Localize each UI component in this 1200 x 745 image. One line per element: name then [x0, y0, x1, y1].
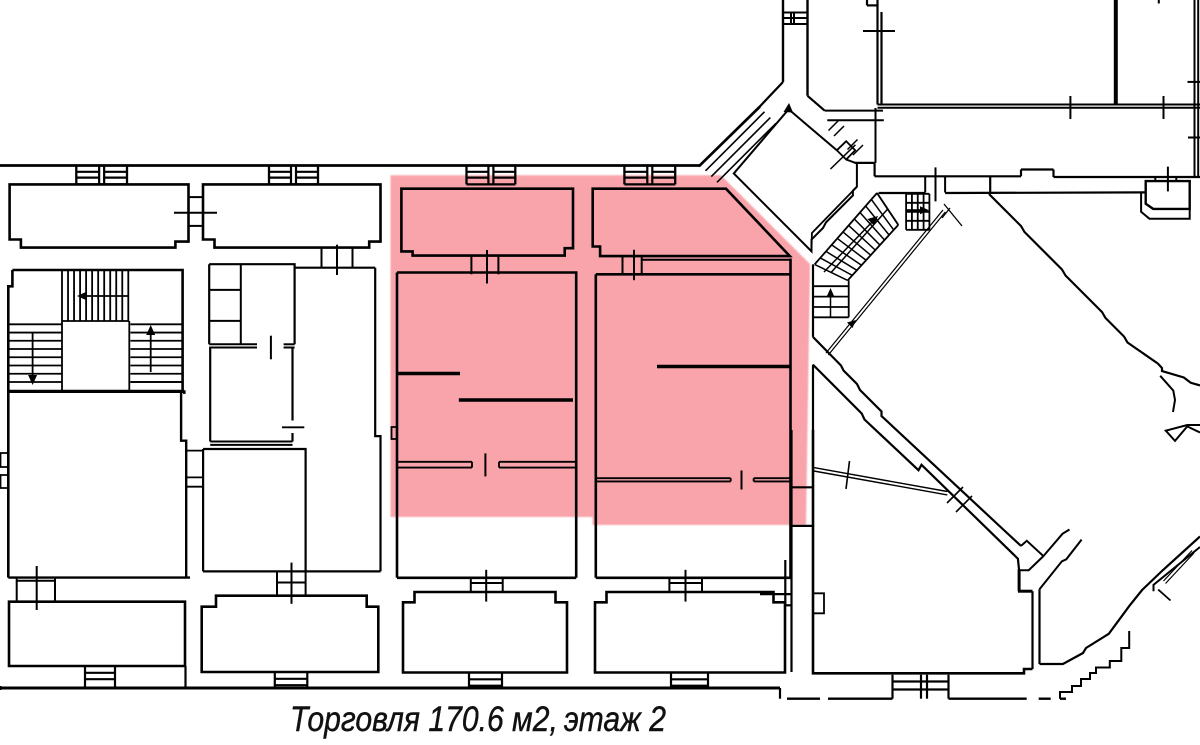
- svg-text:Торговля 170.6 м2, этаж 2: Торговля 170.6 м2, этаж 2: [290, 699, 666, 739]
